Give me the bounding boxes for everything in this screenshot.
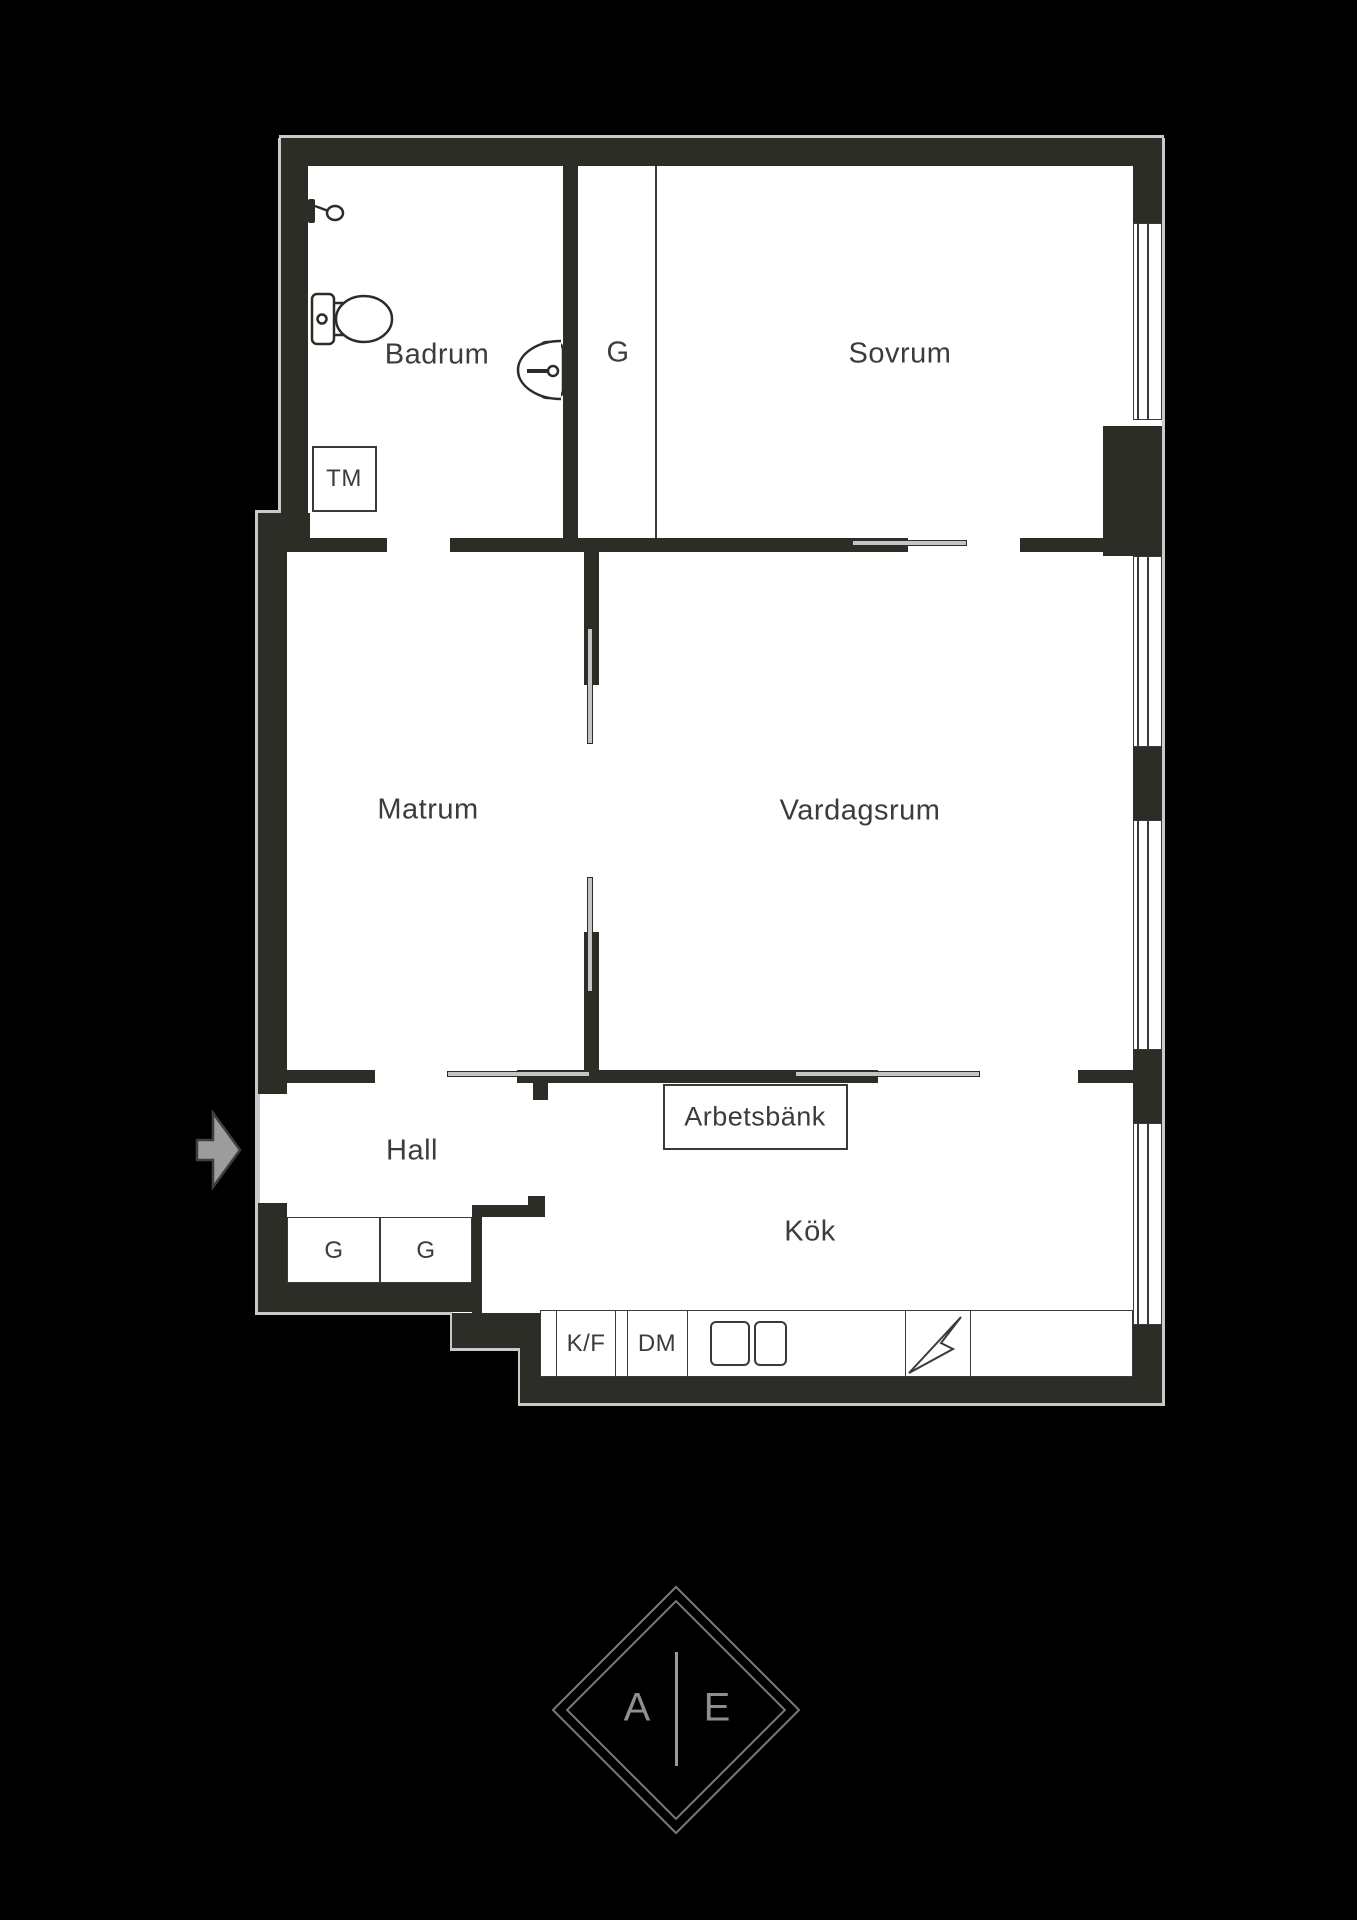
stove-lightning-icon	[909, 1317, 961, 1373]
floor-plan-canvas: Badrum G Sovrum Matrum Vardagsrum Hall K…	[0, 0, 1357, 1920]
room-label-sovrum: Sovrum	[849, 338, 952, 371]
sink-icon	[518, 341, 563, 399]
room-label-matrum: Matrum	[377, 794, 478, 827]
label-washing-machine: TM	[326, 465, 362, 493]
hob-icon	[711, 1322, 786, 1365]
room-label-hall: Hall	[386, 1135, 438, 1168]
room-label-vardagsrum: Vardagsrum	[780, 795, 941, 828]
toilet-icon	[312, 294, 392, 344]
room-label-kok: Kök	[784, 1216, 835, 1249]
label-fridge-freezer: K/F	[567, 1330, 606, 1358]
shower-icon	[308, 199, 343, 223]
room-label-garderob-top: G	[606, 337, 629, 370]
label-dishwasher: DM	[638, 1330, 676, 1358]
logo-letter-left: A	[624, 1686, 651, 1731]
logo-letter-right: E	[704, 1686, 731, 1731]
room-label-badrum: Badrum	[385, 339, 490, 372]
logo-divider-bar	[675, 1652, 678, 1766]
label-workbench: Arbetsbänk	[684, 1102, 826, 1133]
label-hall-closet-1: G	[324, 1237, 343, 1265]
label-hall-closet-2: G	[416, 1237, 435, 1265]
entry-arrow-icon	[197, 1113, 240, 1187]
